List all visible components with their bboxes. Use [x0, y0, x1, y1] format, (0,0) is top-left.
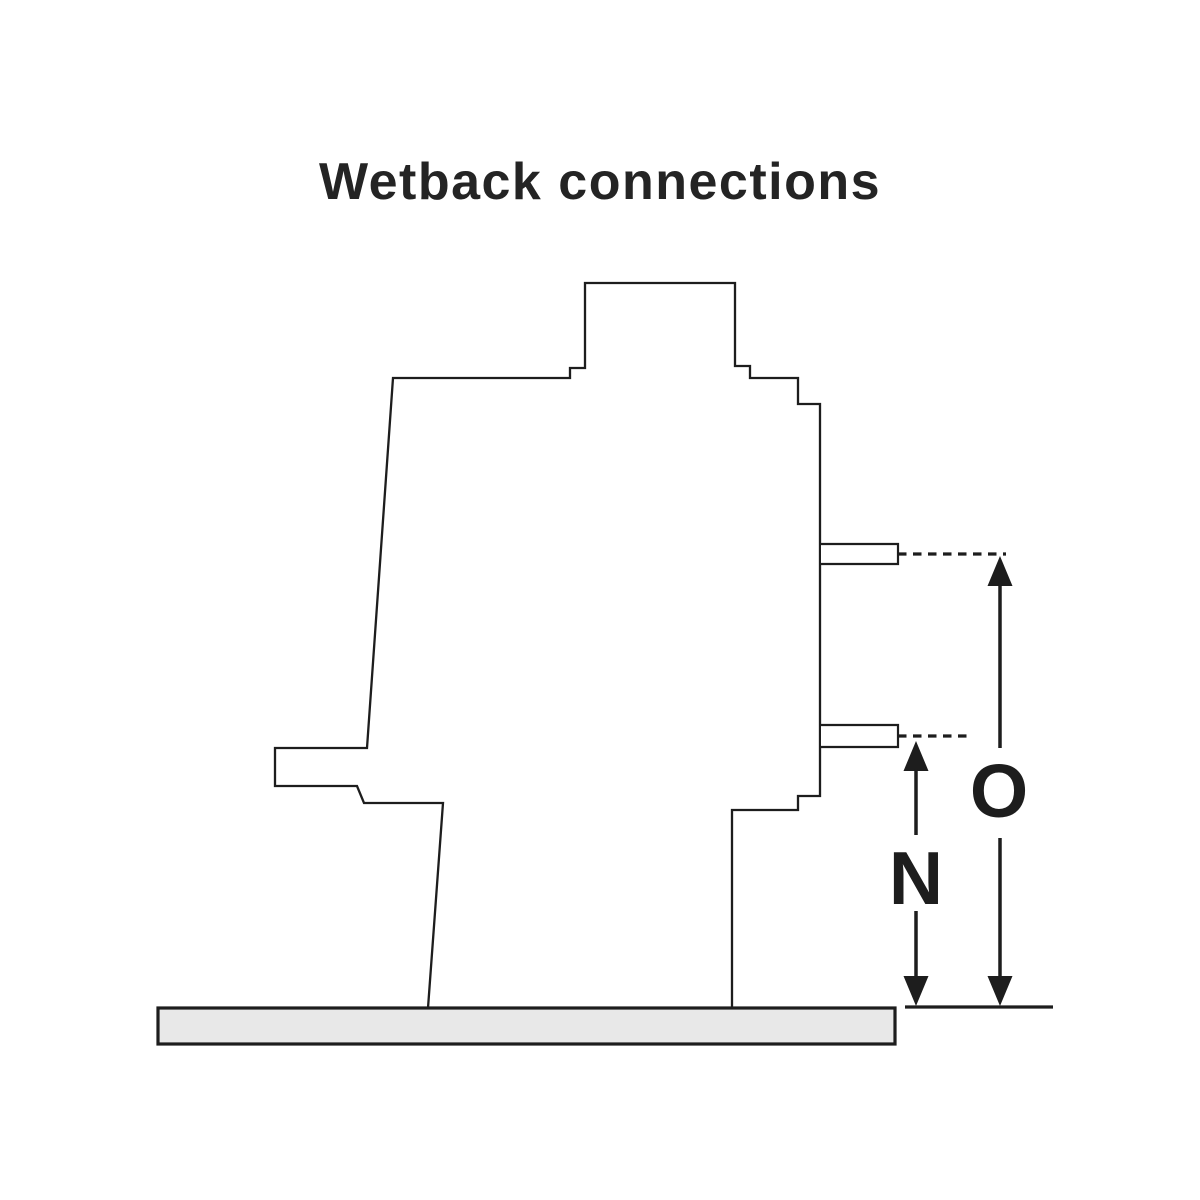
upper-connection-pipe — [821, 544, 898, 564]
page: Wetback connections N O — [0, 0, 1200, 1200]
burner-body-outline — [275, 283, 820, 1008]
lower-connection-pipe — [821, 725, 898, 747]
wetback-connections-diagram: N O — [0, 0, 1200, 1200]
arrow-down-icon — [904, 976, 929, 1006]
arrow-up-icon — [904, 741, 929, 771]
arrow-up-icon — [988, 556, 1013, 586]
dimension-label-n: N — [889, 836, 943, 920]
dimension-arrow-n: N — [889, 741, 943, 1006]
floor-slab — [158, 1008, 895, 1044]
arrow-down-icon — [988, 976, 1013, 1006]
dimension-label-o: O — [970, 749, 1028, 833]
dimension-arrow-o: O — [970, 556, 1028, 1006]
